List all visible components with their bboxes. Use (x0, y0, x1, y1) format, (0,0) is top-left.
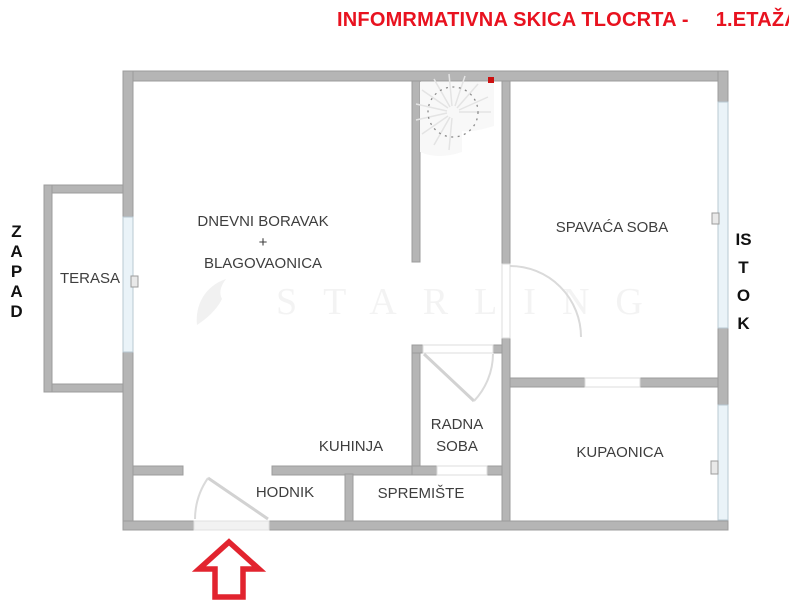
room-label-living-line1: DNEVNI BORAVAK (197, 211, 328, 232)
room-label-storage: SPREMIŠTE (378, 485, 465, 502)
study-door-arc (474, 354, 493, 401)
room-label-terasa: TERASA (60, 270, 120, 287)
wall-segment (412, 81, 420, 262)
bedroom-door-opening (502, 264, 510, 338)
wall-segment (412, 466, 437, 475)
room-label-bathroom: KUPAONICA (576, 444, 663, 461)
entrance-door-opening (194, 521, 269, 530)
entrance-arrow-icon (199, 542, 259, 597)
door-swings (195, 266, 581, 519)
wall-segment (502, 81, 510, 264)
wall-segment (502, 337, 510, 521)
terrace-walls (44, 185, 123, 392)
wall-segment (123, 352, 133, 530)
wall-segment (269, 521, 728, 530)
room-label-kitchen: KUHINJA (319, 438, 383, 455)
wall-segment (44, 185, 52, 392)
entrance-door-arc (195, 478, 208, 519)
room-label-study: RADNA SOBA (421, 414, 493, 458)
wall-segment (52, 384, 123, 392)
study-door-leaf (424, 354, 474, 401)
wall-segment (718, 328, 728, 405)
storage-door-opening (437, 466, 487, 475)
window-handle-icon (131, 276, 138, 287)
wall-segment (412, 353, 420, 466)
watermark-bird-icon (197, 279, 226, 325)
floor-plan-sketch: INFOMRMATIVNA SKICA TLOCRTA - 1.ETAŽA ZA… (0, 0, 789, 616)
window-handle-icon (711, 461, 718, 474)
room-label-hallway: HODNIK (256, 484, 314, 501)
wall-segment (123, 521, 194, 530)
wall-segment (510, 378, 585, 387)
wall-segment (412, 345, 423, 353)
wall-segment (272, 466, 412, 475)
wall-segment (493, 345, 502, 353)
room-label-living: DNEVNI BORAVAK + BLAGOVAONICA (197, 211, 328, 274)
wall-segment (718, 71, 728, 102)
window-handle-icon (712, 213, 719, 224)
wall-segment (133, 466, 183, 475)
wall-segment (640, 378, 718, 387)
wall-segment (123, 71, 133, 217)
stair-steps (420, 82, 494, 156)
wall-segment (345, 474, 353, 521)
study-door-opening (423, 345, 493, 353)
bedroom-door-arc (510, 266, 581, 337)
wall-segment (487, 466, 502, 475)
room-label-bedroom: SPAVAĆA SOBA (556, 219, 669, 236)
room-label-living-line2: + (197, 232, 328, 253)
bathroom-window (718, 405, 728, 520)
spiral-staircase-icon (416, 74, 494, 156)
floor-plan-graphics (0, 0, 789, 616)
wall-segment (123, 71, 728, 81)
bathroom-door-opening (585, 378, 640, 387)
room-label-living-line3: BLAGOVAONICA (197, 253, 328, 274)
stair-red-marker (488, 77, 494, 83)
wall-segment (52, 185, 123, 193)
